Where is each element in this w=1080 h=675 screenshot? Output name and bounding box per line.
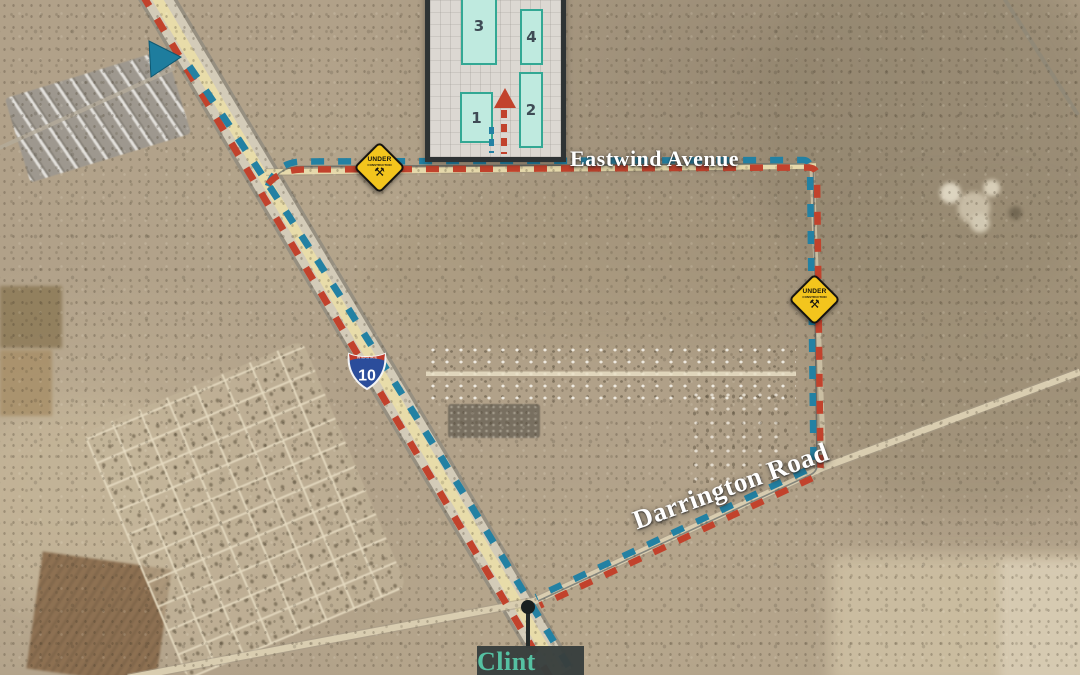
clint-exit-label: Clint Exit (477, 649, 584, 675)
building-4-label: 4 (526, 28, 536, 46)
under-construction-sign-content: UNDER CONSTRUCTION ⚒ (363, 151, 396, 184)
inset-blue-route-dash (489, 127, 494, 153)
building-3-label: 3 (474, 17, 484, 35)
hammer-pick-icon: ⚒ (374, 166, 385, 178)
aerial-map: INTERSTATE 10 3 4 1 2 UNDER CONSTRUCTION… (0, 0, 1080, 675)
building-3: 3 (461, 0, 497, 65)
hammer-pick-icon: ⚒ (809, 298, 820, 310)
route-loop-red-dashed (261, 168, 821, 606)
route-loop-blue-dashed (268, 160, 814, 597)
building-4: 4 (520, 9, 543, 65)
under-construction-sign-content: UNDER CONSTRUCTION ⚒ (798, 283, 831, 316)
interstate-10-shield: INTERSTATE 10 (349, 354, 386, 389)
inset-red-route-dash (501, 110, 507, 154)
callout-exit-dot (521, 600, 535, 614)
shield-band-text: INTERSTATE (357, 355, 378, 359)
inset-north-arrow-icon (494, 88, 516, 108)
clint-exit-callout: Clint Exit (477, 646, 584, 675)
site-plan-inset: 3 4 1 2 (425, 0, 566, 162)
eastwind-avenue-label: Eastwind Avenue (570, 146, 739, 172)
shield-number: 10 (358, 368, 376, 385)
route-loop-centerline (268, 164, 817, 601)
building-2: 2 (519, 72, 543, 148)
building-1-label: 1 (471, 109, 481, 127)
building-2-label: 2 (526, 101, 536, 119)
